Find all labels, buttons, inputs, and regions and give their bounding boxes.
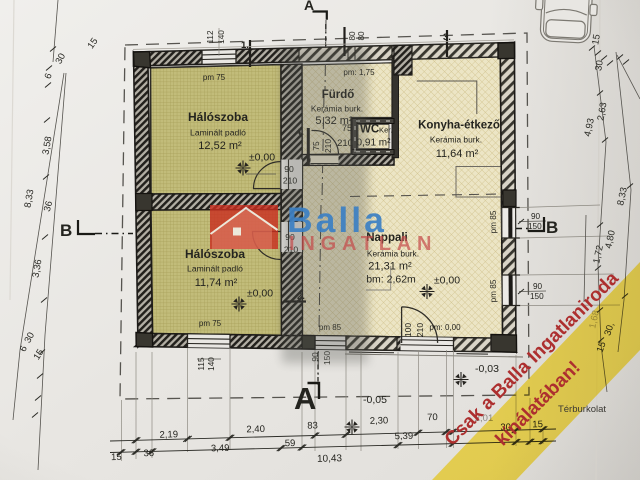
svg-text:90: 90 [531,212,541,221]
svg-text:10,43: 10,43 [317,453,343,465]
svg-text:83: 83 [307,420,318,431]
svg-text:pm: 0,00: pm: 0,00 [429,323,461,332]
svg-text:bm: 2,62m: bm: 2,62m [366,274,416,286]
svg-text:150: 150 [530,292,544,301]
svg-text:-0,05: -0,05 [363,394,387,406]
svg-text:Térburkolat: Térburkolat [558,404,606,415]
svg-text:36: 36 [143,448,154,459]
svg-text:15: 15 [590,33,603,45]
svg-text:±0,00: ±0,00 [249,152,275,164]
svg-text:80: 80 [357,31,366,41]
svg-text:70: 70 [427,412,438,423]
svg-text:5,39: 5,39 [395,431,414,443]
svg-text:B: B [546,218,558,237]
svg-text:112: 112 [206,30,215,43]
svg-text:pm 75: pm 75 [199,319,222,328]
svg-text:B: B [60,221,72,240]
svg-text:140: 140 [217,30,226,44]
svg-text:2,40: 2,40 [246,424,265,436]
svg-text:21,31 m²: 21,31 m² [368,261,412,273]
svg-text:Ker.: Ker. [379,126,393,135]
svg-text:Hálószoba: Hálószoba [185,247,245,261]
svg-text:3.: 3. [443,32,451,43]
svg-text:pm 85: pm 85 [489,279,498,302]
svg-text:pm 75: pm 75 [203,73,226,82]
svg-text:80: 80 [348,31,357,41]
svg-text:150: 150 [528,222,542,231]
svg-text:pm 85: pm 85 [489,210,498,233]
svg-text:A: A [294,381,316,416]
svg-text:11,64 m²: 11,64 m² [436,148,479,160]
svg-text:15: 15 [111,452,122,463]
svg-text:Laminált padló: Laminált padló [187,264,243,274]
svg-text:2,19: 2,19 [159,429,178,441]
svg-text:Kerámia burk.: Kerámia burk. [430,135,482,145]
svg-text:-0,03: -0,03 [475,363,499,375]
svg-text:11,74 m²: 11,74 m² [195,277,238,289]
svg-text:59: 59 [285,438,296,449]
svg-text:Konyha-étkező: Konyha-étkező [418,120,500,132]
svg-text:±0,00: ±0,00 [247,288,273,300]
svg-text:2,30: 2,30 [370,415,389,427]
svg-text:INGATLAN: INGATLAN [289,233,437,255]
svg-text:30: 30 [593,59,606,71]
svg-text:Laminált padló: Laminált padló [190,128,246,138]
svg-text:3,49: 3,49 [211,443,230,455]
svg-text:100: 100 [403,323,413,337]
svg-text:90: 90 [533,282,543,291]
svg-text:±0,00: ±0,00 [434,275,460,287]
svg-text:12,52 m²: 12,52 m² [198,140,242,152]
svg-text:1.: 1. [241,40,249,51]
svg-text:210: 210 [415,323,425,337]
svg-text:Hálószoba: Hálószoba [188,110,248,124]
